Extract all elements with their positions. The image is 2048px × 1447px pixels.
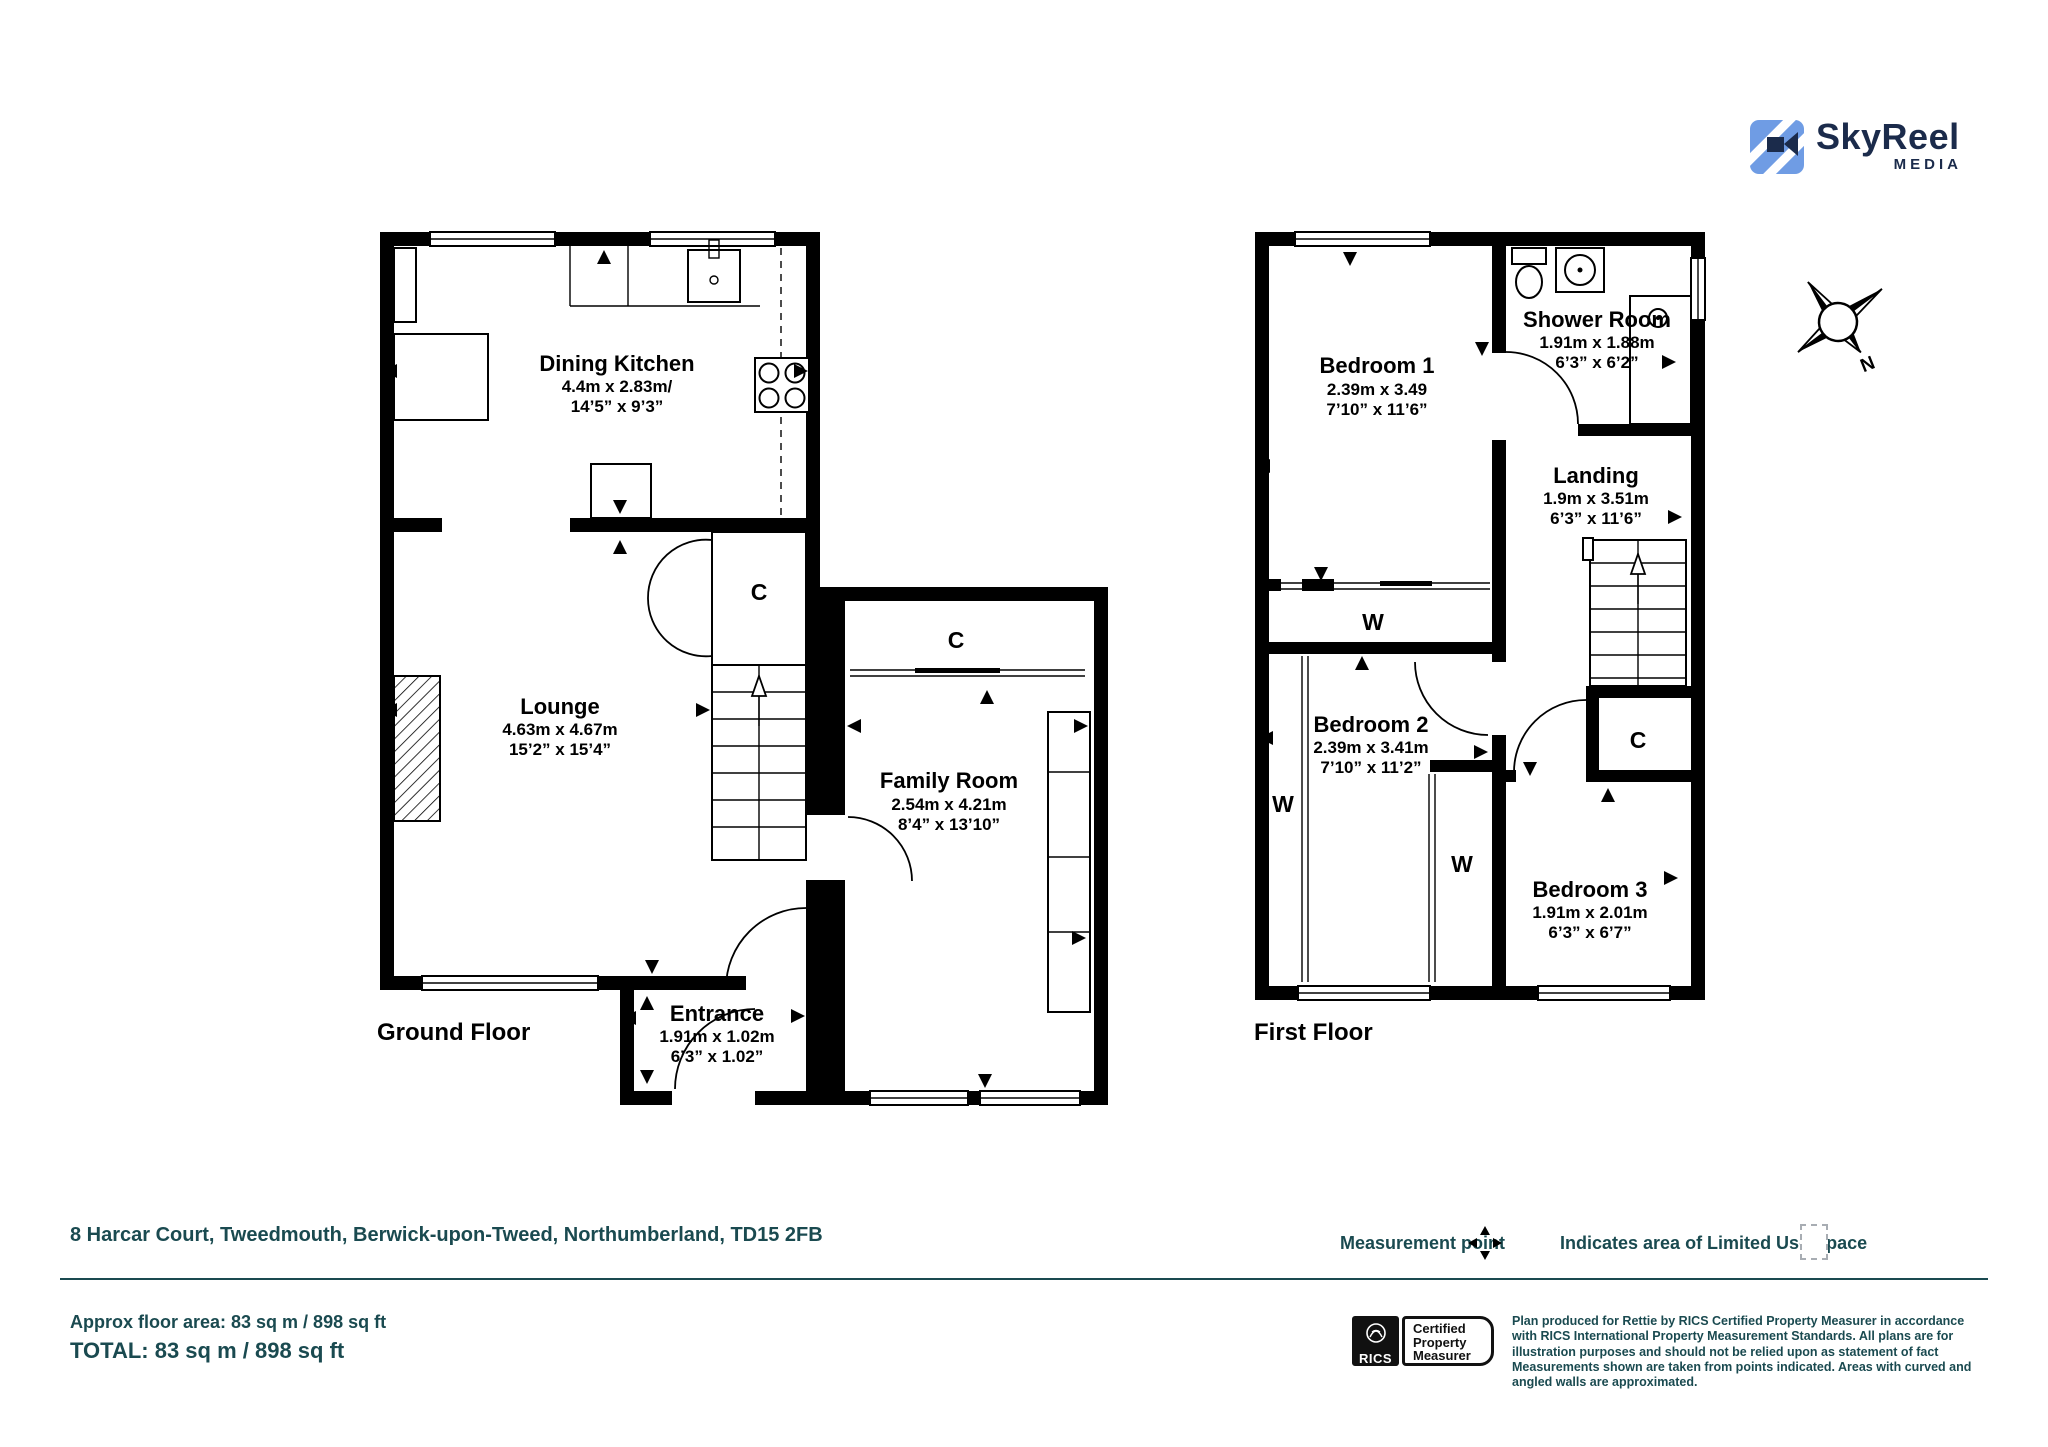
first-floor-cupboard-label: C <box>1630 727 1647 753</box>
skyreel-logo: SkyReel MEDIA <box>1750 114 1990 178</box>
family-room-name: Family Room <box>880 768 1018 793</box>
first-floor-plan: Bedroom 1 2.39m x 3.49 7’10” x 11’6” Sho… <box>1254 232 1705 1046</box>
room-label-bedroom3: Bedroom 3 1.91m x 2.01m 6’3” x 6’7” <box>1532 877 1647 942</box>
bedroom2-imperial: 7’10” x 11’2” <box>1320 758 1421 777</box>
lounge-imperial: 15’2” x 15’4” <box>509 740 611 759</box>
logo-name: SkyReel <box>1816 116 1960 158</box>
footer-divider <box>60 1278 1988 1280</box>
ground-floor-title: Ground Floor <box>377 1019 530 1046</box>
first-floor-wardrobes <box>1273 581 1490 982</box>
logo-tagline: MEDIA <box>1894 156 1962 173</box>
entrance-metric: 1.91m x 1.02m <box>659 1027 774 1046</box>
shower-room-metric: 1.91m x 1.88m <box>1539 333 1654 352</box>
total-floor-area: TOTAL: 83 sq m / 898 sq ft <box>70 1338 344 1364</box>
dining-table <box>394 334 488 420</box>
bedroom1-metric: 2.39m x 3.49 <box>1327 380 1427 399</box>
dining-kitchen-name: Dining Kitchen <box>539 351 694 376</box>
room-label-bedroom2: Bedroom 2 2.39m x 3.41m 7’10” x 11’2” <box>1313 712 1428 777</box>
ground-stairs <box>712 665 806 860</box>
bedroom1-name: Bedroom 1 <box>1320 353 1435 378</box>
rics-certified-badge: Certified Property Measurer <box>1402 1316 1494 1366</box>
bedroom2-name: Bedroom 2 <box>1314 712 1429 737</box>
bedroom1-wardrobe-label: W <box>1362 609 1384 635</box>
lounge-metric: 4.63m x 4.67m <box>502 720 617 739</box>
compass-north-label: N <box>1857 353 1878 378</box>
family-cupboard-label: C <box>948 627 965 653</box>
dining-kitchen-imperial: 14’5” x 9’3” <box>571 397 664 416</box>
family-wardrobe-units <box>1048 712 1090 1012</box>
floorplan-page: Dining Kitchen 4.4m x 2.83m/ 14’5” x 9’3… <box>0 0 2048 1447</box>
property-address: 8 Harcar Court, Tweedmouth, Berwick-upon… <box>70 1224 823 1247</box>
ground-floor-plan: Dining Kitchen 4.4m x 2.83m/ 14’5” x 9’3… <box>377 232 1108 1105</box>
room-label-dining-kitchen: Dining Kitchen 4.4m x 2.83m/ 14’5” x 9’3… <box>539 351 694 416</box>
room-label-family-room: Family Room 2.54m x 4.21m 8’4” x 13’10” <box>880 768 1018 834</box>
landing-name: Landing <box>1553 463 1639 488</box>
kitchen-sink <box>688 240 740 302</box>
family-room-fixtures <box>850 668 1090 1012</box>
bedroom1-imperial: 7’10” x 11’6” <box>1326 400 1427 419</box>
rics-badge-line2: Property <box>1413 1336 1491 1350</box>
rics-badge-line3: Measurer <box>1413 1349 1491 1363</box>
rics-badge-line1: Certified <box>1413 1322 1491 1336</box>
limited-use-space-swatch <box>1800 1224 1828 1260</box>
room-label-shower-room: Shower Room 1.91m x 1.88m 6’3” x 6’2” <box>1523 307 1671 372</box>
bedroom3-door <box>1514 700 1586 772</box>
bedroom2-left-wardrobe-label: W <box>1272 791 1294 817</box>
landing-metric: 1.9m x 3.51m <box>1543 489 1649 508</box>
rics-logo: RICS <box>1352 1316 1399 1366</box>
approx-floor-area: Approx floor area: 83 sq m / 898 sq ft <box>70 1312 386 1333</box>
toilet <box>1512 248 1546 298</box>
skyreel-logo-icon <box>1750 120 1804 174</box>
room-label-bedroom1: Bedroom 1 2.39m x 3.49 7’10” x 11’6” <box>1320 353 1435 419</box>
room-label-landing: Landing 1.9m x 3.51m 6’3” x 11’6” <box>1543 463 1649 528</box>
closet-bifold-doors <box>648 540 712 657</box>
bedroom3-imperial: 6’3” x 6’7” <box>1548 923 1631 942</box>
rics-lion-emblem <box>1356 1321 1396 1345</box>
disclaimer-text: Plan produced for Rettie by RICS Certifi… <box>1512 1314 1992 1390</box>
room-label-entrance: Entrance 1.91m x 1.02m 6’3” x 1.02” <box>659 1001 774 1066</box>
entrance-name: Entrance <box>670 1001 764 1026</box>
room-label-lounge: Lounge 4.63m x 4.67m 15’2” x 15’4” <box>502 694 617 759</box>
dining-kitchen-metric: 4.4m x 2.83m/ <box>562 377 673 396</box>
lounge-name: Lounge <box>520 694 599 719</box>
cupboard-sliding-track <box>915 668 1000 673</box>
basin <box>1556 248 1604 292</box>
landing-imperial: 6’3” x 11’6” <box>1550 509 1642 528</box>
bedroom3-name: Bedroom 3 <box>1533 877 1648 902</box>
measurement-point-icon <box>1466 1224 1504 1262</box>
bedroom3-metric: 1.91m x 2.01m <box>1532 903 1647 922</box>
entrance-imperial: 6’3” x 1.02” <box>671 1047 764 1066</box>
compass-icon: N <box>1796 279 1890 379</box>
shower-room-name: Shower Room <box>1523 307 1671 332</box>
bedroom2-closet-label: W <box>1451 851 1473 877</box>
rics-word: RICS <box>1352 1351 1399 1366</box>
first-floor-stairs <box>1583 538 1686 686</box>
bedroom2-metric: 2.39m x 3.41m <box>1313 738 1428 757</box>
ground-closet-label: C <box>751 579 768 605</box>
first-floor-title: First Floor <box>1254 1019 1373 1046</box>
kitchen-unit <box>394 248 416 322</box>
family-room-imperial: 8’4” x 13’10” <box>898 815 1000 834</box>
shower-room-imperial: 6’3” x 6’2” <box>1555 353 1638 372</box>
kitchen-hob <box>755 358 809 412</box>
chimney-breast <box>394 676 440 821</box>
newel-post <box>1583 538 1593 560</box>
lounge-fixtures <box>394 532 806 860</box>
family-room-metric: 2.54m x 4.21m <box>891 795 1006 814</box>
